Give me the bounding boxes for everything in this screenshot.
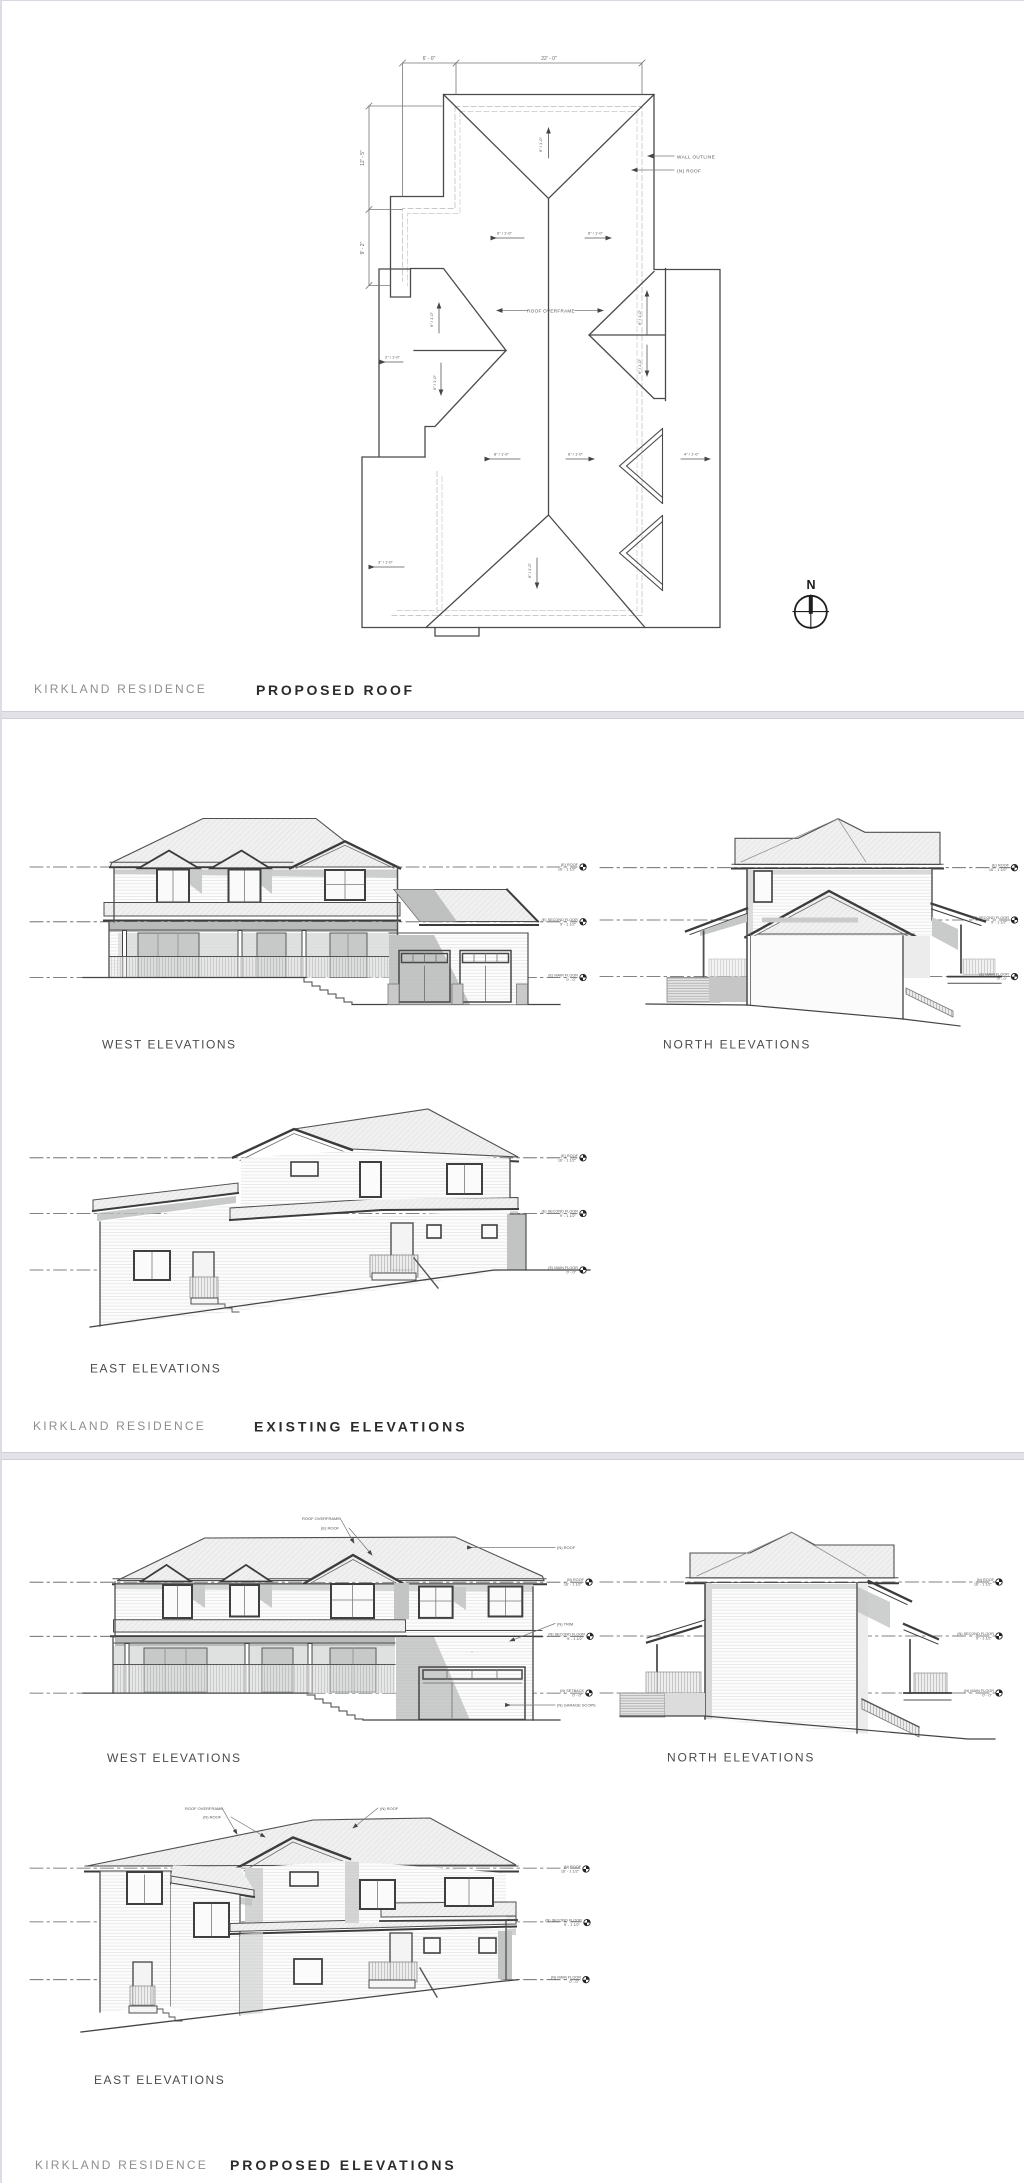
svg-text:(N) SECOND FLOOR: (N) SECOND FLOOR — [545, 1919, 582, 1923]
svg-text:(N) GARAGE SCOPE: (N) GARAGE SCOPE — [557, 1703, 596, 1708]
svg-text:ROOF OVERFRAME: ROOF OVERFRAME — [302, 1516, 340, 1521]
svg-text:0' - 0": 0' - 0" — [566, 1271, 576, 1275]
svg-text:(N) SECOND FLOOR: (N) SECOND FLOOR — [957, 1632, 994, 1636]
svg-text:(E) MAIN FLOOR: (E) MAIN FLOOR — [548, 1266, 578, 1270]
svg-text:0' - 0": 0' - 0" — [572, 1694, 582, 1698]
svg-text:(N) ROOF: (N) ROOF — [203, 1815, 222, 1820]
svg-text:(N) TRIM: (N) TRIM — [557, 1622, 573, 1627]
svg-text:(E) MAIN FLOOR: (E) MAIN FLOOR — [979, 973, 1009, 977]
svg-text:6" / 1'-0": 6" / 1'-0" — [432, 374, 437, 390]
svg-text:(N) ROOF: (N) ROOF — [567, 1578, 585, 1582]
svg-text:PROPOSED ROOF: PROPOSED ROOF — [256, 682, 415, 698]
svg-text:(N) ROOF: (N) ROOF — [557, 1545, 576, 1550]
svg-text:9' - 1 1/2": 9' - 1 1/2" — [560, 1214, 577, 1218]
svg-text:0' - 0": 0' - 0" — [566, 978, 576, 982]
svg-text:EXISTING ELEVATIONS: EXISTING ELEVATIONS — [254, 1419, 468, 1435]
svg-text:8" / 1'-0": 8" / 1'-0" — [494, 452, 510, 457]
svg-text:WEST ELEVATIONS: WEST ELEVATIONS — [102, 1038, 237, 1052]
svg-text:6" / 1'-0": 6" / 1'-0" — [527, 562, 532, 578]
svg-text:4" / 1'-0": 4" / 1'-0" — [684, 452, 700, 457]
svg-text:16' - 1 1/2": 16' - 1 1/2" — [564, 1583, 583, 1587]
svg-text:9' - 1 1/2": 9' - 1 1/2" — [560, 922, 577, 926]
svg-text:EAST ELEVATIONS: EAST ELEVATIONS — [90, 1362, 221, 1376]
svg-text:PROPOSED ELEVATIONS: PROPOSED ELEVATIONS — [230, 2157, 457, 2173]
svg-text:12' - 5": 12' - 5" — [360, 150, 366, 166]
svg-text:ROOF OVERFRAME: ROOF OVERFRAME — [527, 309, 575, 314]
svg-text:16' - 1 1/2": 16' - 1 1/2" — [989, 868, 1008, 872]
svg-text:WALL OUTLINE: WALL OUTLINE — [677, 155, 715, 160]
svg-text:(N) ROOF: (N) ROOF — [677, 169, 701, 174]
svg-text:NORTH ELEVATIONS: NORTH ELEVATIONS — [667, 1751, 815, 1765]
svg-text:6" / 1'-0": 6" / 1'-0" — [429, 311, 434, 327]
svg-text:0' - 0": 0' - 0" — [997, 977, 1007, 981]
svg-text:(E) ROOF: (E) ROOF — [561, 1154, 579, 1158]
svg-text:22' - 0": 22' - 0" — [541, 56, 557, 62]
svg-text:16' - 1 1/2": 16' - 1 1/2" — [558, 868, 577, 872]
svg-text:(N) MAIN FLOOR: (N) MAIN FLOOR — [551, 1976, 581, 1980]
svg-text:2" / 1'-0": 2" / 1'-0" — [385, 355, 401, 360]
svg-text:ROOF OVERFRAME: ROOF OVERFRAME — [185, 1806, 223, 1811]
svg-text:16' - 1 1/2": 16' - 1 1/2" — [558, 1158, 577, 1162]
svg-text:6" / 1'-0": 6" / 1'-0" — [588, 231, 604, 236]
svg-text:6" / 1'-0": 6" / 1'-0" — [538, 136, 543, 152]
svg-text:6" / 1'-0": 6" / 1'-0" — [637, 358, 642, 374]
svg-text:KIRKLAND RESIDENCE: KIRKLAND RESIDENCE — [34, 682, 207, 696]
svg-text:NORTH ELEVATIONS: NORTH ELEVATIONS — [663, 1038, 811, 1052]
svg-text:(E) ROOF: (E) ROOF — [561, 863, 579, 867]
svg-text:(N) MAIN FLOOR: (N) MAIN FLOOR — [964, 1689, 994, 1693]
svg-text:(E) ROOF: (E) ROOF — [321, 1526, 340, 1531]
svg-text:KIRKLAND RESIDENCE: KIRKLAND RESIDENCE — [33, 1419, 206, 1433]
svg-text:9' - 1 1/2": 9' - 1 1/2" — [564, 1923, 581, 1927]
svg-text:(N) ROOF: (N) ROOF — [564, 1865, 582, 1869]
svg-text:16' - 1 1/2": 16' - 1 1/2" — [974, 1583, 993, 1587]
svg-text:N: N — [806, 578, 815, 592]
svg-text:(E) ROOF: (E) ROOF — [992, 864, 1010, 868]
svg-text:(N) SETBACK: (N) SETBACK — [560, 1689, 585, 1693]
svg-text:3" / 1'-0": 3" / 1'-0" — [378, 560, 394, 565]
svg-text:6" / 1'-0": 6" / 1'-0" — [568, 452, 584, 457]
svg-text:9' - 1 1/2": 9' - 1 1/2" — [991, 921, 1008, 925]
svg-text:KIRKLAND RESIDENCE: KIRKLAND RESIDENCE — [35, 2158, 208, 2172]
svg-text:6" / 1'-0": 6" / 1'-0" — [497, 231, 513, 236]
svg-text:(E) SECOND FLOOR: (E) SECOND FLOOR — [973, 916, 1010, 920]
svg-text:9' - 2": 9' - 2" — [360, 241, 366, 254]
svg-text:0' - 0": 0' - 0" — [982, 1694, 992, 1698]
svg-text:16' - 1 1/2": 16' - 1 1/2" — [561, 1870, 580, 1874]
svg-text:9' - 1 1/2": 9' - 1 1/2" — [976, 1637, 993, 1641]
svg-text:EAST ELEVATIONS: EAST ELEVATIONS — [94, 2073, 225, 2087]
svg-text:(E) SECOND FLOOR: (E) SECOND FLOOR — [542, 1210, 579, 1214]
svg-text:WEST ELEVATIONS: WEST ELEVATIONS — [107, 1751, 242, 1765]
svg-text:(E) MAIN FLOOR: (E) MAIN FLOOR — [548, 974, 578, 978]
svg-text:(N) SECOND FLOOR: (N) SECOND FLOOR — [548, 1632, 585, 1636]
svg-text:0' - 0": 0' - 0" — [569, 1980, 579, 1984]
svg-text:(N) ROOF: (N) ROOF — [380, 1806, 399, 1811]
svg-text:6' - 0": 6' - 0" — [423, 56, 436, 62]
svg-text:(N) ROOF: (N) ROOF — [977, 1578, 995, 1582]
svg-text:(E) SECOND FLOOR: (E) SECOND FLOOR — [542, 918, 579, 922]
svg-text:6" / 1'-0": 6" / 1'-0" — [637, 309, 642, 325]
svg-text:9' - 1 1/2": 9' - 1 1/2" — [567, 1637, 584, 1641]
